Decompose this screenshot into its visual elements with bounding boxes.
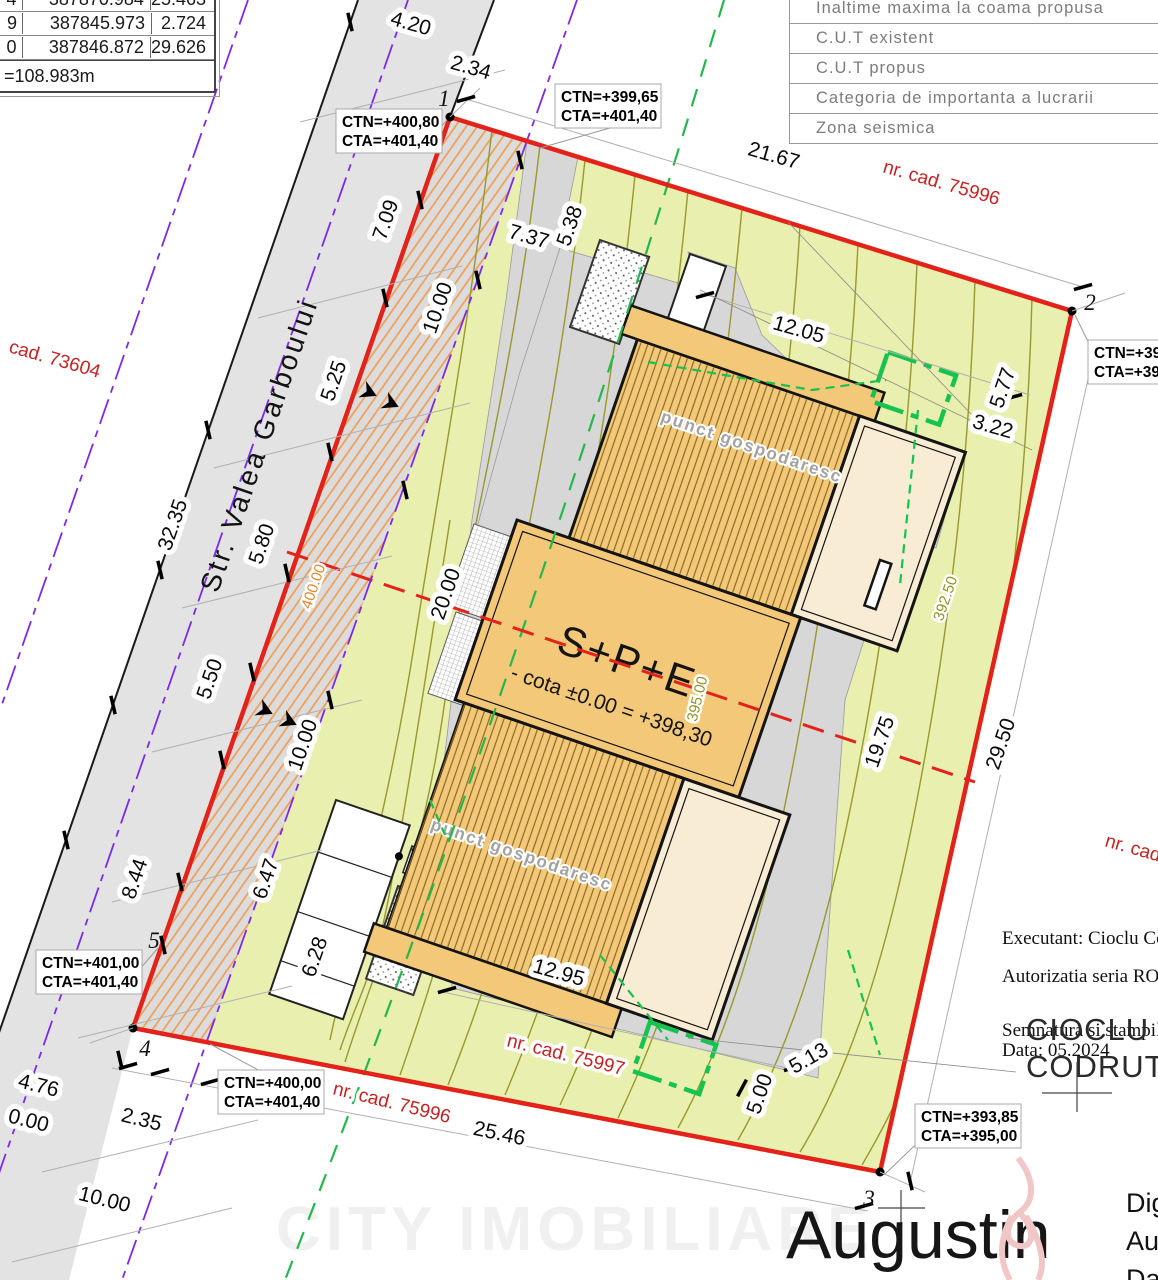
coord-cell: 387870.984 xyxy=(23,0,151,10)
level-box-6: CTN=+393,85CTA=+395,00 xyxy=(915,1104,1021,1148)
level-box-2: CTN=+399,65CTA=+401,40 xyxy=(555,84,661,128)
dist-cell: 29.626 xyxy=(151,37,214,58)
svg-text:CTN=+399,65: CTN=+399,65 xyxy=(561,89,659,106)
svg-text:CTA=+401,40: CTA=+401,40 xyxy=(342,133,438,150)
table-row: 4387870.98425.463 xyxy=(0,0,214,12)
svg-text:CTN=+401,00: CTN=+401,00 xyxy=(42,955,139,972)
dist-cell: 25.463 xyxy=(151,0,214,10)
svg-text:CTN=+400,00: CTN=+400,00 xyxy=(224,1075,321,1092)
param-row: C.U.T propus xyxy=(789,53,1158,84)
param-row: Zona seismica xyxy=(789,113,1158,144)
svg-text:CTN=+393,85: CTN=+393,85 xyxy=(921,1109,1019,1126)
authorization-label: Autorizatia seria RO-MM- xyxy=(1002,966,1158,987)
point-label-4: 4 xyxy=(139,1036,151,1061)
svg-text:CTA=+393: CTA=+393 xyxy=(1094,364,1158,381)
point-cell: 9 xyxy=(0,13,23,34)
table-row: 0387846.87229.626 xyxy=(0,36,214,60)
parameters-table: Inaltime maxima la coama propusa C.U.T e… xyxy=(789,0,1158,144)
svg-text:CTA=+401,40: CTA=+401,40 xyxy=(42,974,138,991)
point-label-1: 1 xyxy=(438,86,450,111)
svg-text:CTA=+401,40: CTA=+401,40 xyxy=(224,1094,320,1111)
point-label-5: 5 xyxy=(148,928,160,953)
point-label-2: 2 xyxy=(1084,290,1096,315)
digital-sig-line-1: Digi xyxy=(1126,1188,1158,1218)
executant-label: Executant: Cioclu Codru xyxy=(1002,928,1158,949)
level-box-1: CTN=+400,80CTA=+401,40 xyxy=(336,109,442,153)
svg-text:CTA=+401,40: CTA=+401,40 xyxy=(561,108,657,125)
level-box-5: CTN=+400,00CTA=+401,40 xyxy=(218,1070,324,1114)
watermark: CITY IMOBILIARE xyxy=(276,1195,873,1264)
stamp-name-2: CODRUT-R xyxy=(1026,1049,1158,1084)
coord-cell: 387846.872 xyxy=(23,37,151,58)
svg-text:CTN=+391: CTN=+391 xyxy=(1094,345,1158,362)
perimeter-total: =108.983m xyxy=(0,60,214,91)
svg-text:CTA=+395,00: CTA=+395,00 xyxy=(921,1128,1017,1145)
svg-text:CTN=+400,80: CTN=+400,80 xyxy=(342,114,439,131)
param-row: Categoria de importanta a lucrarii xyxy=(789,83,1158,114)
dist-cell: 2.724 xyxy=(152,13,214,34)
stamp-name-1: CIOCLU xyxy=(1026,1012,1149,1047)
site-plan: CITY IMOBILIARE S+P+E - cota ±0.00 = +39… xyxy=(0,0,1158,1280)
coordinates-table: 4387870.98425.463 9387845.9732.724 03878… xyxy=(0,0,216,93)
param-row: C.U.T existent xyxy=(789,23,1158,54)
table-row: 9387845.9732.724 xyxy=(0,12,214,36)
param-row: Inaltime maxima la coama propusa xyxy=(789,0,1158,24)
digital-sig-line-2: Aug xyxy=(1126,1226,1158,1256)
level-box-4: CTN=+401,00CTA=+401,40 xyxy=(36,950,142,994)
digital-sig-line-3: Dat xyxy=(1126,1264,1158,1280)
site-plan-canvas: CITY IMOBILIARE S+P+E - cota ±0.00 = +39… xyxy=(0,0,1158,1280)
coord-cell: 387845.973 xyxy=(23,13,152,34)
point-cell: 0 xyxy=(0,37,23,58)
level-box-3: CTN=+391CTA=+393 xyxy=(1088,340,1158,384)
point-cell: 4 xyxy=(0,0,23,10)
